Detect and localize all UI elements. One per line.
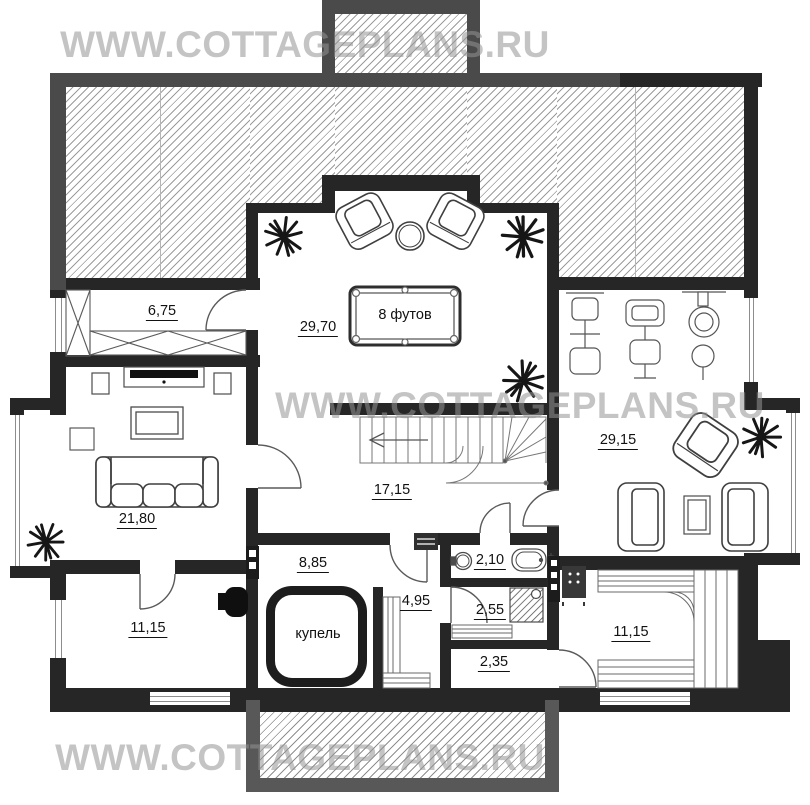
plant-icon: [496, 209, 550, 264]
plant-icon: [266, 217, 302, 255]
shower-tray: [510, 588, 543, 622]
room-label-billiard-table-size: 8 футов: [378, 307, 431, 323]
armchair: [423, 190, 487, 253]
watermark-middle: WWW.COTTAGEPLANS.RU: [275, 385, 765, 427]
floor-plan: 6,7529,708 футов17,1529,1521,8011,158,85…: [0, 0, 810, 805]
room-label-stair-hall: 17,15: [372, 482, 412, 500]
sofa: [96, 457, 218, 507]
sink: [451, 553, 472, 570]
furnace: [218, 587, 248, 617]
room-label-steam-anteroom: 4,95: [400, 593, 432, 611]
coffee-table: [131, 407, 183, 439]
bathtub: [512, 549, 554, 571]
armchair: [333, 190, 397, 253]
room-label-shower-room: 2,55: [474, 602, 506, 620]
room-label-bathroom: 2,10: [474, 552, 506, 570]
room-label-wardrobe: 6,75: [146, 303, 178, 321]
steam-stove: [414, 533, 438, 550]
gym-equipment: [566, 292, 726, 380]
round-table: [396, 222, 424, 250]
room-label-storage-left: 11,15: [128, 620, 167, 638]
room-label-sauna: 11,15: [611, 624, 650, 642]
bench: [452, 625, 512, 638]
room-label-billiard-room: 29,70: [298, 319, 338, 337]
room-label-pool-room: 8,85: [297, 555, 329, 573]
side-table: [70, 428, 94, 450]
watermark-bottom: WWW.COTTAGEPLANS.RU: [55, 737, 545, 779]
sauna-stove: [562, 566, 586, 606]
staircase: [360, 417, 548, 485]
room-label-plunge-pool: купель: [295, 626, 340, 642]
plant-icon: [24, 519, 66, 563]
tv: [124, 367, 204, 387]
watermark-top: WWW.COTTAGEPLANS.RU: [60, 24, 550, 66]
coffee-table: [684, 496, 710, 534]
room-label-vestibule: 2,35: [478, 654, 510, 672]
room-label-gym-lounge: 29,15: [598, 432, 638, 450]
room-label-living-room: 21,80: [117, 511, 157, 529]
